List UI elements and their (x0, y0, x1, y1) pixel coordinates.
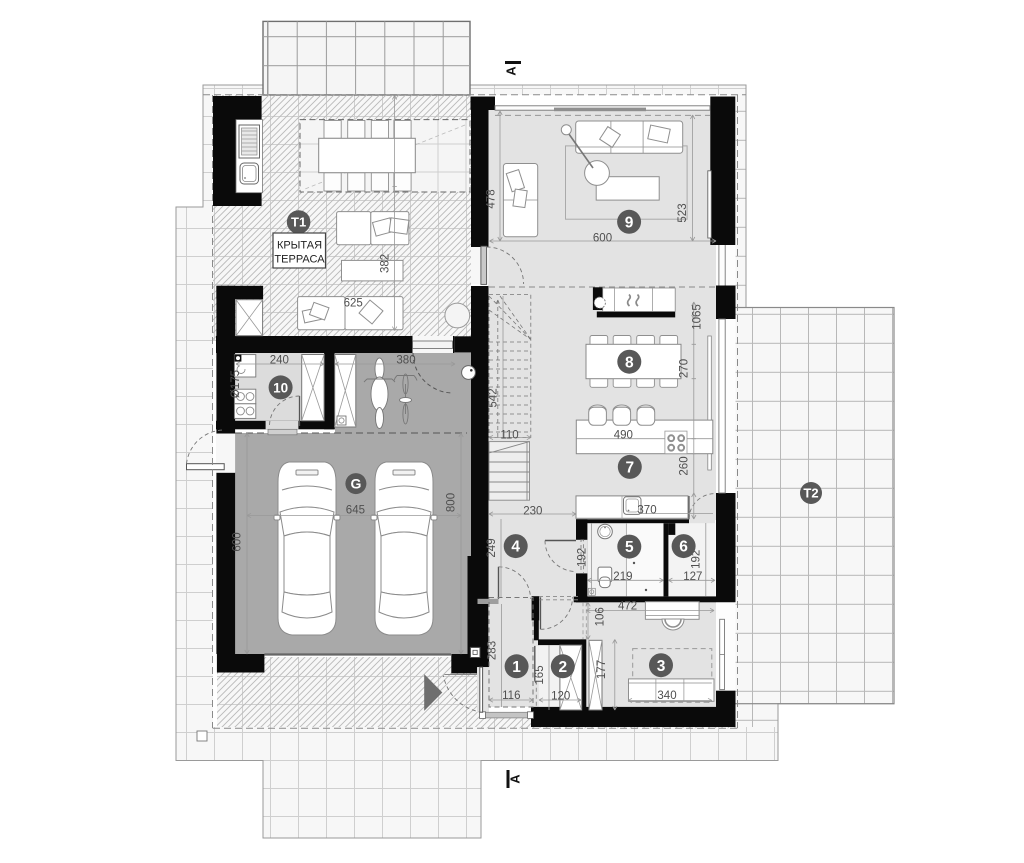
svg-text:Ø175: Ø175 (230, 370, 242, 398)
svg-text:1: 1 (512, 659, 521, 676)
svg-text:340: 340 (657, 690, 676, 702)
svg-text:5: 5 (625, 539, 634, 556)
svg-text:106: 106 (595, 607, 607, 626)
svg-text:625: 625 (344, 297, 363, 309)
svg-text:ТЕРРАСА: ТЕРРАСА (274, 254, 325, 266)
svg-text:A: A (508, 774, 523, 784)
svg-text:270: 270 (679, 359, 691, 378)
svg-text:9: 9 (625, 214, 634, 231)
svg-text:380: 380 (396, 355, 415, 367)
svg-text:192: 192 (576, 548, 588, 567)
svg-text:A: A (504, 66, 519, 76)
svg-text:3: 3 (657, 658, 666, 675)
svg-text:600: 600 (593, 233, 612, 245)
svg-text:283: 283 (487, 641, 499, 660)
svg-text:645: 645 (346, 505, 365, 517)
svg-text:116: 116 (502, 690, 520, 702)
svg-text:7: 7 (625, 459, 634, 476)
svg-text:230: 230 (523, 506, 542, 518)
svg-text:6: 6 (679, 539, 688, 556)
svg-text:4: 4 (511, 539, 520, 556)
svg-text:472: 472 (618, 601, 637, 613)
svg-text:478: 478 (486, 189, 498, 208)
svg-text:127: 127 (683, 571, 702, 583)
svg-text:8: 8 (625, 354, 634, 371)
svg-text:370: 370 (637, 505, 656, 517)
svg-text:542: 542 (487, 388, 499, 407)
svg-text:600: 600 (232, 532, 244, 551)
svg-text:КРЫТАЯ: КРЫТАЯ (277, 240, 322, 252)
svg-text:800: 800 (446, 493, 458, 512)
svg-text:1065: 1065 (691, 304, 703, 330)
svg-text:10: 10 (273, 380, 288, 395)
svg-text:T2: T2 (803, 486, 818, 501)
svg-text:490: 490 (614, 430, 633, 442)
svg-text:382: 382 (379, 254, 391, 273)
svg-text:177: 177 (596, 660, 608, 679)
svg-text:120: 120 (551, 690, 570, 702)
svg-text:2: 2 (558, 659, 567, 676)
svg-text:T1: T1 (291, 215, 306, 230)
svg-text:165: 165 (534, 665, 546, 684)
svg-text:110: 110 (500, 430, 518, 442)
svg-text:249: 249 (486, 538, 498, 557)
svg-text:G: G (350, 476, 361, 492)
svg-text:260: 260 (679, 456, 691, 475)
svg-text:240: 240 (270, 355, 289, 367)
svg-text:523: 523 (677, 203, 689, 222)
svg-text:219: 219 (613, 571, 632, 583)
